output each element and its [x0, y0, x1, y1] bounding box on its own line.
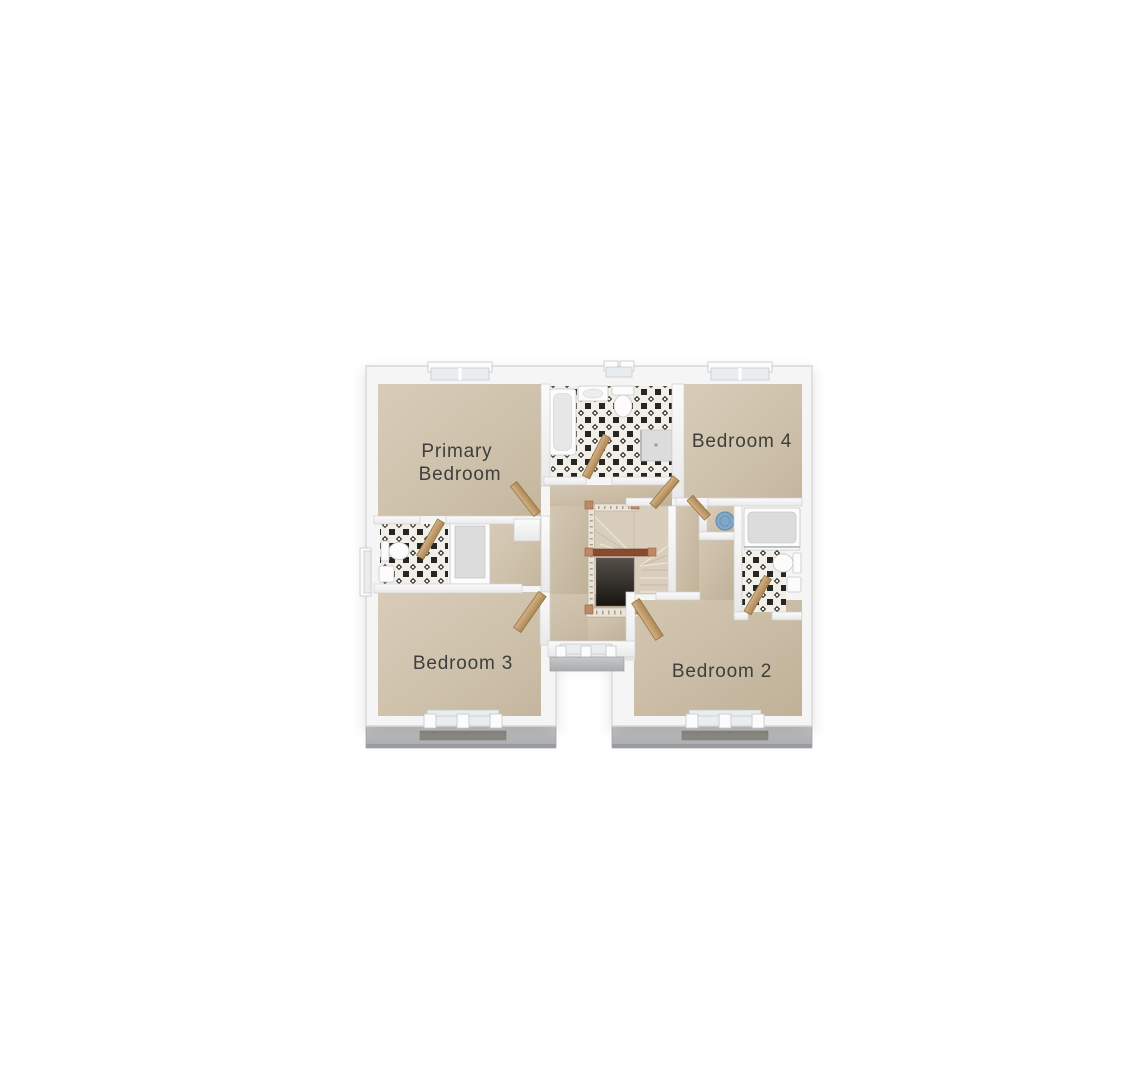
label-primary-line1: Primary — [421, 441, 492, 462]
wall — [734, 506, 742, 614]
window-bedroom-4 — [708, 362, 772, 380]
label-bedroom-4: Bedroom 4 — [692, 431, 792, 452]
bedroom-2-floor-arm — [699, 540, 734, 600]
stair-handrail-dark — [588, 549, 652, 556]
window-family-bathroom — [604, 361, 634, 377]
shower-tray — [455, 526, 485, 578]
wall — [734, 612, 748, 620]
floor-plan-page: Primary Bedroom Bedroom 4 Bedroom 3 Bedr… — [0, 0, 1146, 1080]
toilet-bowl — [389, 543, 409, 560]
window-primary-bedroom — [428, 362, 492, 380]
window-en-suite-1 — [360, 548, 371, 596]
toilet-cistern — [793, 553, 801, 573]
wall — [541, 516, 550, 592]
blue-basin — [716, 512, 734, 530]
wall — [668, 506, 676, 594]
label-bedroom-2: Bedroom 2 — [672, 661, 772, 682]
landing-floor — [588, 618, 626, 641]
floor-plan-svg: Primary Bedroom Bedroom 4 Bedroom 3 Bedr… — [0, 0, 1146, 1080]
wall — [374, 584, 522, 593]
sink — [379, 566, 394, 582]
wall — [708, 498, 802, 506]
family-bathroom — [549, 386, 672, 477]
wall — [656, 592, 700, 600]
sink — [787, 577, 801, 592]
shower-drain — [654, 443, 657, 446]
window-bedroom-2 — [686, 710, 764, 728]
wall — [612, 477, 672, 485]
wall — [626, 498, 653, 506]
sill-edge — [612, 744, 812, 748]
wall — [544, 477, 586, 485]
window-landing-bay — [550, 644, 624, 671]
landing-floor — [550, 506, 588, 594]
wall — [374, 516, 420, 524]
wall — [772, 612, 802, 620]
window-ledge — [682, 731, 768, 740]
toilet-cistern — [612, 386, 634, 395]
toilet-bowl — [614, 395, 632, 417]
window-bedroom-3 — [424, 710, 502, 728]
shower-bath-basin — [748, 512, 796, 543]
sink-bowl — [583, 389, 603, 398]
wall-stub — [514, 519, 540, 541]
wall — [541, 384, 550, 486]
window-ledge — [420, 731, 506, 740]
label-bedroom-3: Bedroom 3 — [413, 653, 513, 674]
bedroom-2-floor-arm — [676, 506, 699, 600]
label-primary-line2: Bedroom — [419, 464, 502, 485]
toilet-cistern — [381, 541, 389, 561]
sill-edge — [366, 744, 556, 748]
toilet-bowl — [773, 554, 793, 572]
bay-window-sill — [550, 657, 624, 671]
bathtub-basin — [554, 394, 572, 451]
